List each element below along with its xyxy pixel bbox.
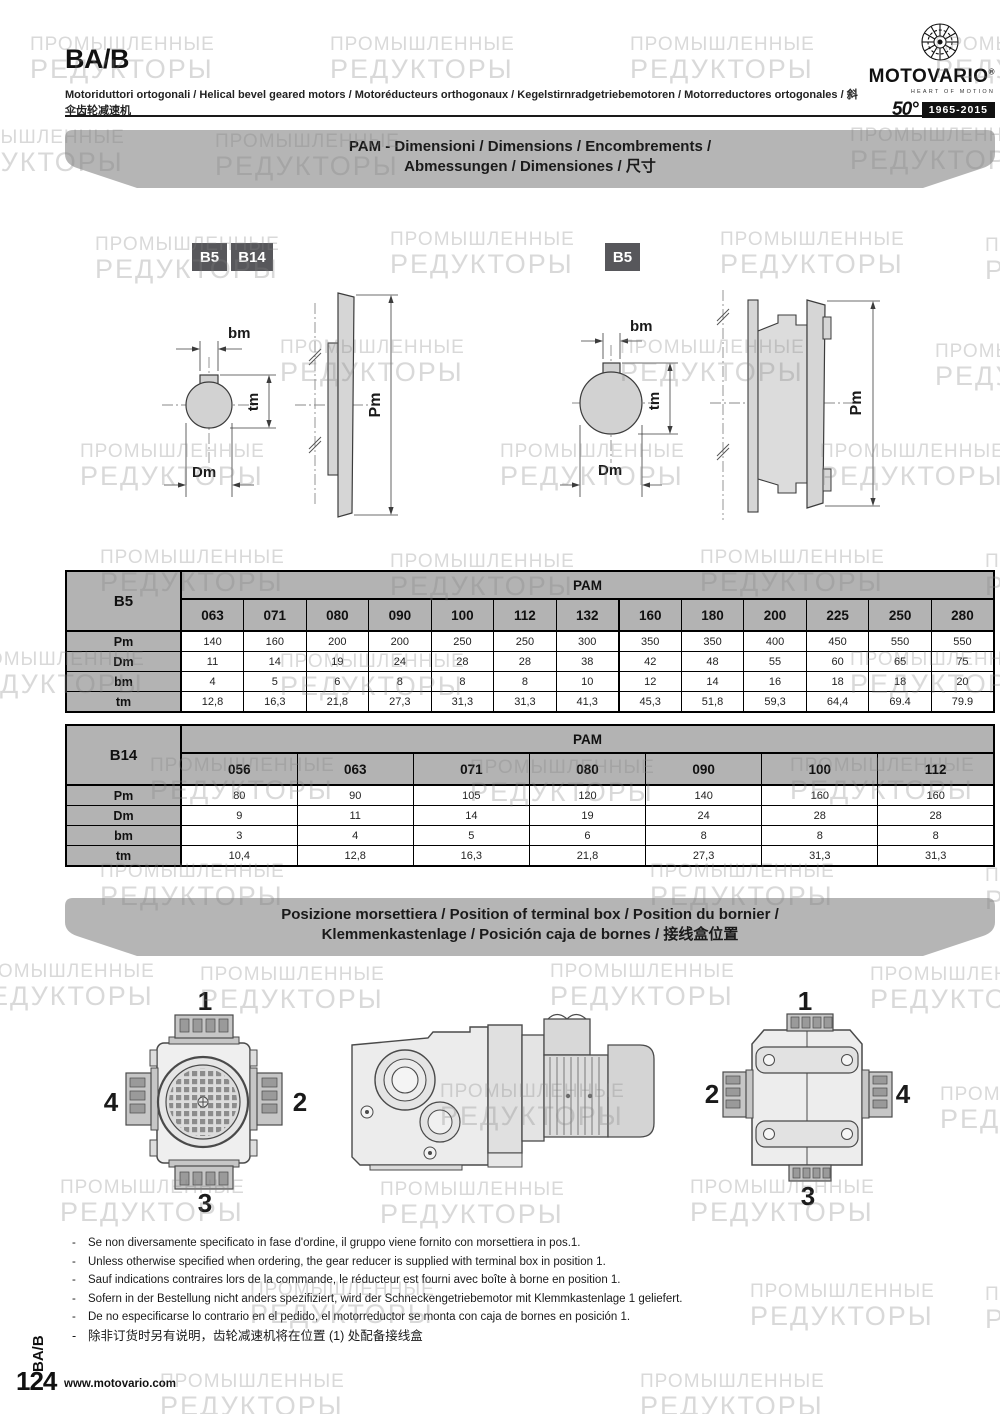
table-column-header: 112: [494, 599, 557, 631]
table-cell: 27,3: [369, 692, 432, 713]
pam-dimensions-banner: PAM - Dimensioni / Dimensions / Encombre…: [65, 130, 995, 190]
table-column-header: 090: [369, 599, 432, 631]
dimension-drawing-b5-b14: bm tm Dm Pm: [80, 285, 520, 565]
table-column-header: 250: [869, 599, 932, 631]
note-chinese: -除非订货时另有说明，齿轮减速机将在位置 (1) 处配备接线盒: [72, 1327, 952, 1346]
table-cell: 59,3: [744, 692, 807, 713]
table-cell: 24: [369, 652, 432, 672]
table-cell: 550: [931, 631, 994, 652]
table-cell: 24: [646, 806, 762, 826]
table-cell: 16,3: [244, 692, 307, 713]
dim-label-dm: Dm: [192, 464, 216, 481]
position-number-front-left: 2: [705, 1079, 719, 1109]
table-row: tm12,816,321,827,331,331,341,345,351,859…: [66, 692, 994, 713]
table-cell: 90: [297, 785, 413, 806]
table-cell: 6: [306, 672, 369, 692]
tag-b5-right: B5: [605, 243, 640, 271]
table-cell: 140: [181, 631, 244, 652]
table-cell: 14: [413, 806, 529, 826]
table-group-header: PAM: [181, 571, 994, 599]
note-spanish: -De no especificarse lo contrario en el …: [72, 1308, 952, 1327]
table-column-header: 063: [297, 753, 413, 785]
table-cell: 350: [681, 631, 744, 652]
dim-label-tm: tm: [646, 392, 663, 410]
table-column-header: 200: [744, 599, 807, 631]
table-cell: 38: [556, 652, 619, 672]
table-cell: 160: [878, 785, 994, 806]
terminal-box-plate-right: [862, 1070, 869, 1118]
terminal-banner-line2: Klemmenkastenlage / Posición caja de bor…: [322, 925, 739, 945]
table-column-header: 160: [619, 599, 682, 631]
table-cell: 51,8: [681, 692, 744, 713]
table-group-header: PAM: [181, 725, 994, 753]
table-row: Dm11141924282838424855606575: [66, 652, 994, 672]
table-cell: 12,8: [181, 692, 244, 713]
cover-bolt: [764, 1129, 775, 1140]
table-column-header: 090: [646, 753, 762, 785]
dimension-table: B14PAM056063071080090100112Pm80901051201…: [65, 724, 995, 867]
table-cell: 16: [744, 672, 807, 692]
table-cell: 3: [181, 826, 297, 846]
table-cell: 250: [431, 631, 494, 652]
dimension-drawing-b5: bm tm Dm Pm: [560, 285, 980, 565]
anniversary-number: 50°: [892, 99, 918, 121]
anniversary-years: 1965-2015: [922, 102, 995, 118]
distributor-watermark: ПРОМЫШЛЕННЫЕРЕДУКТОРЫ: [160, 1372, 345, 1414]
table-cell: 300: [556, 631, 619, 652]
page-number: 124: [16, 1366, 56, 1397]
table-row-label: tm: [66, 846, 181, 867]
table-cell: 11: [297, 806, 413, 826]
header-divider: [65, 115, 995, 117]
table-cell: 80: [181, 785, 297, 806]
table-cell: 4: [297, 826, 413, 846]
position-number-front-top: 1: [798, 990, 812, 1016]
table-cell: 28: [878, 806, 994, 826]
flange-disc: [807, 300, 825, 508]
table-row-label: Dm: [66, 806, 181, 826]
terminal-box-plate-right: [250, 1068, 257, 1130]
flange-disc: [338, 293, 354, 517]
brand-name: MOTOVARIO®: [858, 66, 995, 88]
table-column-header: 180: [681, 599, 744, 631]
table-cell: 8: [762, 826, 878, 846]
table-column-header: 100: [762, 753, 878, 785]
table-cell: 31,3: [431, 692, 494, 713]
brand-tagline: HEART OF MOTION: [858, 89, 995, 95]
table-row: Dm9111419242828: [66, 806, 994, 826]
table-column-header: 071: [244, 599, 307, 631]
table-column-header: 071: [413, 753, 529, 785]
cover-bolt: [764, 1055, 775, 1066]
table-cell: 8: [431, 672, 494, 692]
table-cell: 42: [619, 652, 682, 672]
table-b14-pam-dimensions: B14PAM056063071080090100112Pm80901051201…: [65, 724, 995, 867]
flange-tab: [823, 469, 831, 491]
table-cell: 200: [369, 631, 432, 652]
table-cell: 21,8: [529, 846, 645, 867]
registered-mark: ®: [989, 68, 995, 77]
table-row: bm45688810121416181820: [66, 672, 994, 692]
tag-b14-left: B14: [231, 243, 273, 271]
table-cell: 350: [619, 631, 682, 652]
pam-banner-line2: Abmessungen / Dimensiones / 尺寸: [404, 157, 656, 177]
position-number-rear-top: 1: [198, 990, 212, 1016]
flange-tab: [823, 317, 831, 339]
table-cell: 28: [494, 652, 557, 672]
distributor-watermark: ПРОМЫШЛЕННЫЕРЕДУКТОРЫ: [985, 236, 1000, 284]
footnotes: -Se non diversamente specificato in fase…: [72, 1234, 952, 1346]
table-cell: 12,8: [297, 846, 413, 867]
table-column-header: 063: [181, 599, 244, 631]
table-cell: 8: [494, 672, 557, 692]
terminal-position-rear-view: 1 2 3 4: [95, 990, 325, 1215]
dim-label-bm: bm: [228, 325, 251, 342]
table-column-header: 280: [931, 599, 994, 631]
table-row-label: Pm: [66, 631, 181, 652]
table-cell: 16,3: [413, 846, 529, 867]
table-cell: 160: [762, 785, 878, 806]
table-row: tm10,412,816,321,827,331,331,3: [66, 846, 994, 867]
table-cell: 120: [529, 785, 645, 806]
table-cell: 550: [869, 631, 932, 652]
table-b5-pam-dimensions: B5PAM06307108009010011213216018020022525…: [65, 570, 995, 713]
motor-adapter: [522, 1035, 544, 1141]
table-cell: 14: [681, 672, 744, 692]
table-column-header: 056: [181, 753, 297, 785]
terminal-box-plate-left: [746, 1070, 753, 1118]
table-cell: 28: [431, 652, 494, 672]
table-cell: 250: [494, 631, 557, 652]
distributor-watermark: ПРОМЫШЛЕННЫЕРЕДУКТОРЫ: [630, 35, 815, 83]
dim-label-pm: Pm: [367, 393, 384, 418]
table-cell: 11: [181, 652, 244, 672]
table-cell: 75: [931, 652, 994, 672]
distributor-watermark: ПРОМЫШЛЕННЫЕРЕДУКТОРЫ: [720, 230, 905, 278]
table-cell: 65: [869, 652, 932, 672]
dim-label-pm: Pm: [848, 391, 865, 416]
output-bore: [392, 1067, 418, 1093]
motor-finned-body: [544, 1055, 608, 1137]
table-cell: 18: [869, 672, 932, 692]
table-row-label: bm: [66, 826, 181, 846]
flange-spigot: [328, 343, 338, 475]
gearbox-foot: [370, 1165, 462, 1170]
motovario-mandala-icon: [918, 20, 962, 64]
shaft-bore: [186, 382, 232, 428]
table-cell: 200: [306, 631, 369, 652]
dim-label-tm: tm: [245, 393, 262, 411]
table-row-label: Dm: [66, 652, 181, 672]
table-cell: 9: [181, 806, 297, 826]
table-corner-label: B5: [66, 571, 181, 631]
dim-label-dm: Dm: [598, 462, 622, 479]
table-cell: 19: [306, 652, 369, 672]
table-cell: 4: [181, 672, 244, 692]
position-number-front-bottom: 3: [801, 1181, 815, 1211]
table-cell: 18: [806, 672, 869, 692]
output-flange: [488, 1025, 522, 1153]
distributor-watermark: ПРОМЫШЛЕННЫЕРЕДУКТОРЫ: [330, 35, 515, 83]
table-row: bm3456888: [66, 826, 994, 846]
position-number-rear-left: 4: [104, 1087, 119, 1117]
table-corner-label: B14: [66, 725, 181, 785]
table-cell: 31,3: [494, 692, 557, 713]
distributor-watermark: ПРОМЫШЛЕННЫЕРЕДУКТОРЫ: [985, 1285, 1000, 1333]
dimension-table: B5PAM06307108009010011213216018020022525…: [65, 570, 995, 713]
table-cell: 105: [413, 785, 529, 806]
website-link[interactable]: www.motovario.com: [64, 1378, 176, 1390]
table-cell: 19: [529, 806, 645, 826]
dim-label-bm: bm: [630, 318, 653, 335]
table-cell: 31,3: [762, 846, 878, 867]
terminal-banner-line1: Posizione morsettiera / Position of term…: [281, 905, 779, 925]
terminal-position-front-view: 1 2 4 3: [690, 990, 920, 1215]
position-number-rear-bottom: 3: [198, 1188, 212, 1215]
table-column-header: 132: [556, 599, 619, 631]
table-cell: 14: [244, 652, 307, 672]
table-cell: 28: [762, 806, 878, 826]
table-cell: 60: [806, 652, 869, 672]
page-subtitle: Motoriduttori ortogonali / Helical bevel…: [65, 86, 865, 118]
table-cell: 450: [806, 631, 869, 652]
terminal-box-lid: [548, 1015, 586, 1020]
table-cell: 140: [646, 785, 762, 806]
secondary-bore-inner: [428, 1110, 452, 1134]
table-cell: 400: [744, 631, 807, 652]
note-french: -Sauf indications contraires lors de la …: [72, 1271, 952, 1290]
table-cell: 31,3: [878, 846, 994, 867]
table-cell: 10: [556, 672, 619, 692]
pam-banner-line1: PAM - Dimensioni / Dimensions / Encombre…: [349, 137, 711, 157]
note-german: -Sofern in der Bestellung nicht anders s…: [72, 1290, 952, 1309]
table-column-header: 080: [306, 599, 369, 631]
motor-end-cap: [608, 1045, 654, 1137]
note-italian: -Se non diversamente specificato in fase…: [72, 1234, 952, 1253]
page-title: BA/B: [65, 44, 129, 75]
table-cell: 6: [529, 826, 645, 846]
tag-b5-left: B5: [192, 243, 227, 271]
catalog-page: BA/B Motoriduttori ortogonali / Helical …: [0, 0, 1000, 1414]
flange-lower-step: [488, 1153, 522, 1167]
table-column-header: 100: [431, 599, 494, 631]
table-cell: 48: [681, 652, 744, 672]
table-cell: 12: [619, 672, 682, 692]
table-cell: 5: [244, 672, 307, 692]
table-column-header: 080: [529, 753, 645, 785]
terminal-box-banner: Posizione morsettiera / Position of term…: [65, 898, 995, 958]
distributor-watermark: ПРОМЫШЛЕННЫЕРЕДУКТОРЫ: [640, 1372, 825, 1414]
table-row: Pm8090105120140160160: [66, 785, 994, 806]
cover-bolt: [842, 1129, 853, 1140]
shaft-bore: [580, 372, 642, 434]
distributor-watermark: ПРОМЫШЛЕННЫЕРЕДУКТОРЫ: [940, 1085, 1000, 1133]
table-row: Pm14016020020025025030035035040045055055…: [66, 631, 994, 652]
geared-motor-side-view: [340, 1005, 670, 1195]
table-cell: 8: [646, 826, 762, 846]
anniversary-badge: 50° 1965-2015: [858, 99, 995, 121]
table-cell: 5: [413, 826, 529, 846]
table-cell: 160: [244, 631, 307, 652]
table-cell: 21,8: [306, 692, 369, 713]
table-cell: 45,3: [619, 692, 682, 713]
brand-logo: MOTOVARIO® HEART OF MOTION 50° 1965-2015: [858, 20, 995, 121]
table-column-header: 112: [878, 753, 994, 785]
table-cell: 8: [369, 672, 432, 692]
motor-face-plate: [748, 300, 758, 512]
table-cell: 27,3: [646, 846, 762, 867]
table-row-label: Pm: [66, 785, 181, 806]
table-row-label: bm: [66, 672, 181, 692]
table-cell: 10,4: [181, 846, 297, 867]
table-cell: 55: [744, 652, 807, 672]
table-cell: 8: [878, 826, 994, 846]
note-english: -Unless otherwise specified when orderin…: [72, 1253, 952, 1272]
table-cell: 41,3: [556, 692, 619, 713]
position-number-front-right: 4: [896, 1079, 911, 1109]
table-cell: 20: [931, 672, 994, 692]
table-cell: 79.9: [931, 692, 994, 713]
terminal-box-plate-left: [151, 1068, 158, 1130]
cover-bolt: [842, 1055, 853, 1066]
table-cell: 69.4: [869, 692, 932, 713]
position-number-rear-right: 2: [293, 1087, 307, 1117]
distributor-watermark: ПРОМЫШЛЕННЫЕРЕДУКТОРЫ: [390, 230, 575, 278]
adapter-body: [758, 315, 807, 493]
table-row-label: tm: [66, 692, 181, 713]
motor-terminal-box: [544, 1019, 590, 1055]
table-cell: 64,4: [806, 692, 869, 713]
table-column-header: 225: [806, 599, 869, 631]
